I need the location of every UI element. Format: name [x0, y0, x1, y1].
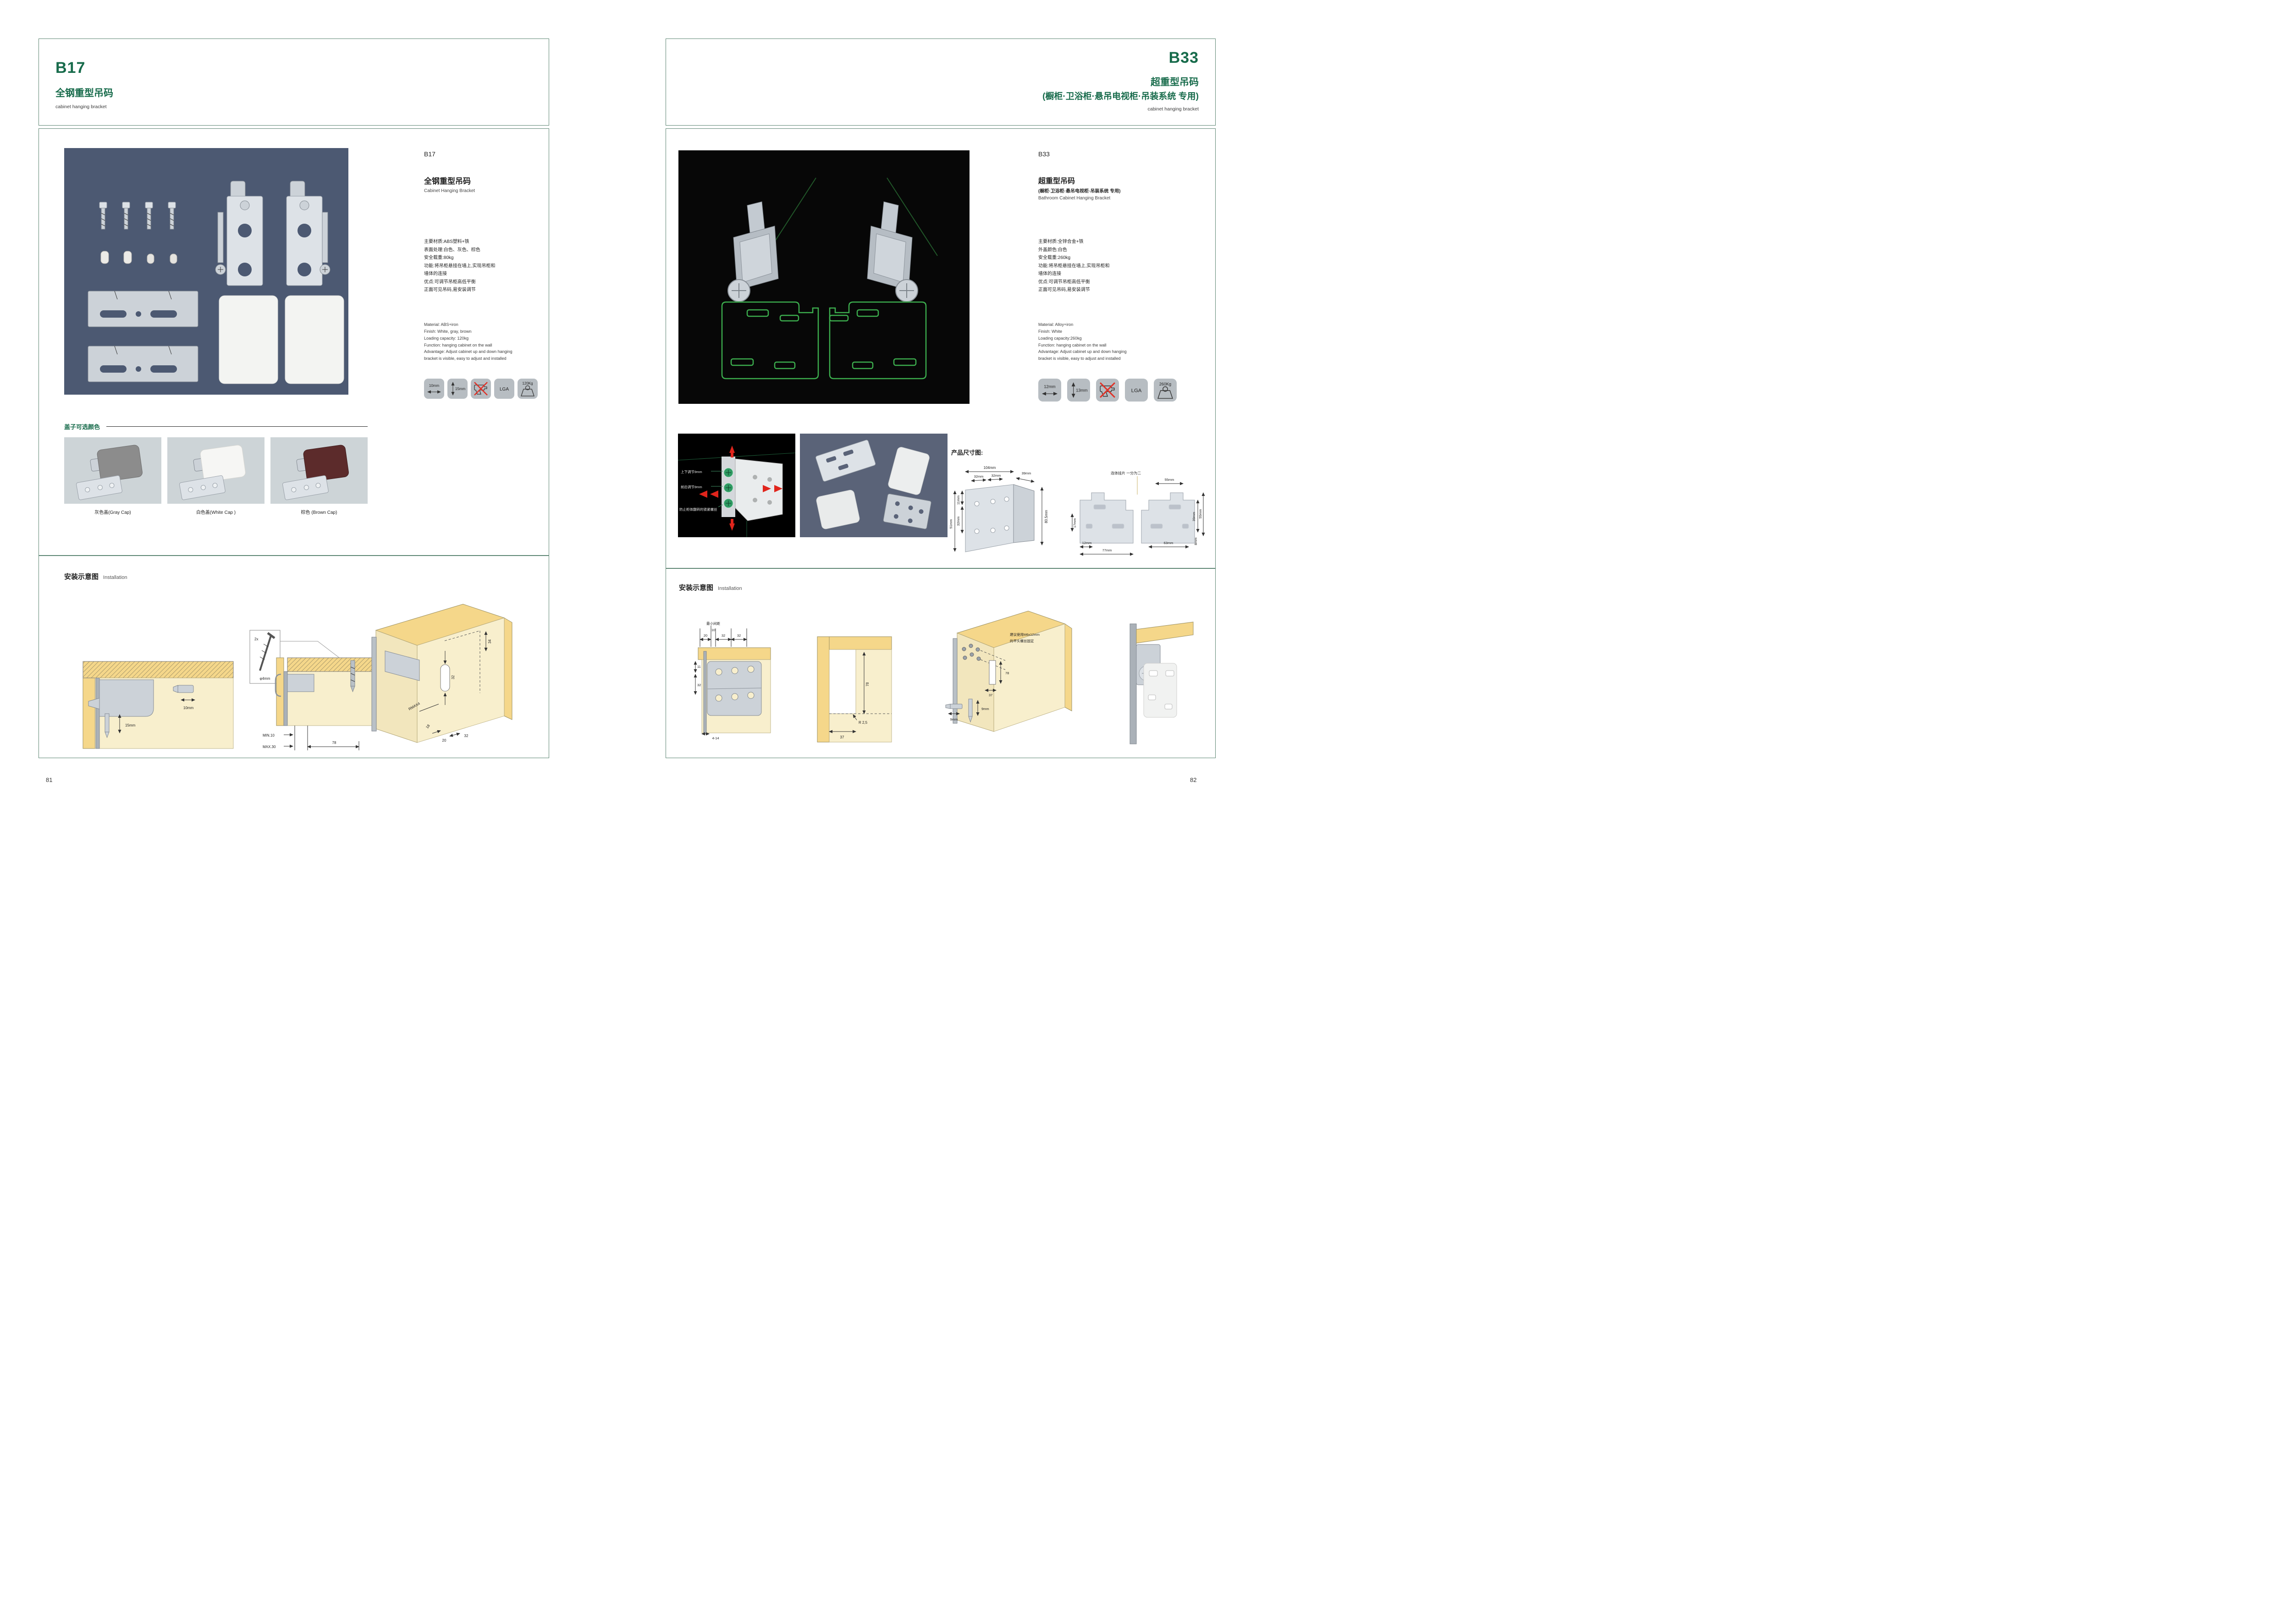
- dim-12mm: 12mm: [1082, 541, 1092, 545]
- install-diagram-wall-section: 10mm 15mm: [79, 658, 237, 752]
- dim-10mm: 10mm: [183, 706, 194, 710]
- dim-10: 10: [711, 628, 715, 632]
- dim-77mm: 77mm: [1102, 548, 1112, 552]
- cap-colors-title: 盖子可选颜色: [64, 422, 100, 431]
- spec-line: 功能:将吊柜悬挂在墙上,实现吊柜和: [424, 262, 496, 270]
- specs-cn: 主要材质:全锌合金+铁 外盖颜色:白色 安全载重:260kg 功能:将吊柜悬挂在…: [1038, 238, 1110, 294]
- dim-32-b: 32: [464, 734, 468, 738]
- height-label: 13mm: [1076, 388, 1087, 392]
- product-subtitle-cn: (橱柜·卫浴柜·悬吊电视柜·吊装系统 专用): [1038, 187, 1120, 194]
- dim-9mm-a: 9mm: [950, 717, 958, 721]
- product-dims-title: 产品尺寸图:: [951, 448, 983, 457]
- spec-line: Advantage: Adjust cabinet up and down ha…: [424, 348, 512, 355]
- dim-51mm: 51mm: [949, 519, 953, 529]
- adjustment-feature-image: 上下调节9mm 前后调节9mm 防止柜体翻转的锁紧螺丝: [678, 434, 795, 537]
- spec-line: bracket is visible, easy to adjust and i…: [424, 355, 512, 362]
- right-header-subtitle-en: cabinet hanging bracket: [1148, 106, 1199, 112]
- specs-cn: 主要材质:ABS塑料+铁 表面处理:白色、灰色、棕色 安全载重:80kg 功能:…: [424, 238, 496, 294]
- installation-title-en: Installation: [718, 586, 742, 591]
- width-label: 12mm: [1044, 384, 1055, 389]
- specs-en: Material: ABS+iron Finish: White, gray, …: [424, 321, 512, 362]
- install-diagram-hole-pattern: 最小间距 20 10 32 32 11 32 4-14: [694, 619, 774, 743]
- dim-32mm-a: 32mm: [974, 474, 984, 479]
- hardware-kit-image: [64, 148, 348, 395]
- height-range-icon: 15mm: [447, 379, 468, 399]
- product-code: B17: [424, 150, 435, 158]
- white-cap-label: 白色盖(White Cap ): [167, 508, 264, 515]
- load-label: 120Kg: [522, 381, 533, 385]
- spec-line: 外盖颜色:白色: [1038, 246, 1110, 254]
- cap-colors-section: 盖子可选颜色: [64, 422, 368, 515]
- install-diagram-hung-bracket: [1120, 619, 1198, 748]
- spec-line: 墙体的连接: [424, 270, 496, 278]
- dim-r25: R 2,5: [859, 721, 868, 725]
- divider-line: [106, 426, 368, 427]
- spec-line: Advantage: Adjust cabinet up and down ha…: [1038, 348, 1127, 355]
- left-header-subtitle: cabinet hanging bracket: [55, 104, 107, 110]
- white-cap-image: [167, 437, 264, 504]
- dim-32mm-b: 32mm: [992, 473, 1001, 478]
- parts-image: [800, 434, 948, 537]
- dim-37: 37: [840, 735, 844, 739]
- dim-min: MIN.10: [263, 733, 275, 738]
- spec-line: 主要材质:全锌合金+铁: [1038, 238, 1110, 246]
- brown-cap-image: [270, 437, 368, 504]
- dim-78: 78: [1005, 671, 1009, 675]
- gray-cap-label: 灰色盖(Gray Cap): [64, 508, 161, 515]
- dim-max: MAX.30: [263, 745, 276, 749]
- spec-line: Loading capacity: 120kg: [424, 335, 512, 342]
- product-title-cn: 全钢重型吊码: [424, 175, 471, 186]
- dim-32a: 32: [722, 633, 725, 638]
- dim-9mm-b: 9mm: [981, 707, 989, 711]
- spec-line: 优点:可调节吊柜高低平衡: [424, 278, 496, 286]
- dim-78: 78: [865, 682, 870, 686]
- lga-cert-icon: LGA: [1125, 379, 1148, 402]
- left-header-title: 全钢重型吊码: [55, 86, 113, 99]
- load-label: 260Kg: [1159, 382, 1171, 386]
- spec-line: Function: hanging cabinet on the wall: [1038, 342, 1127, 349]
- product-code: B33: [1038, 150, 1050, 158]
- install-diagram-screw-recommendation: 建议使用M6x12mm 的平头螺丝固定 78 37 9mm 9mm: [937, 606, 1088, 752]
- spec-line: 正面可见吊码,易安装调节: [424, 286, 496, 294]
- right-main-box: B33 超重型吊码 (橱柜·卫浴柜·悬吊电视柜·吊装系统 专用) Bathroo…: [666, 128, 1216, 568]
- spec-line: Finish: White: [1038, 328, 1127, 335]
- dim-32b: 32: [737, 633, 741, 638]
- left-product-photo: [64, 148, 348, 395]
- left-main-box: B17 全钢重型吊码 Cabinet Hanging Bracket 主要材质:…: [39, 128, 549, 556]
- screw-dia: φ4mm: [260, 677, 270, 681]
- left-icon-row: 10mm 15mm LGA 120Kg: [424, 379, 538, 399]
- left-product-info: B17 全钢重型吊码 Cabinet Hanging Bracket 主要材质:…: [424, 129, 542, 555]
- dim-4-14: 4-14: [712, 736, 719, 740]
- left-installation-box: 安装示意图 Installation 10mm 15mm: [39, 556, 549, 758]
- right-header-subtitle-cn: (橱柜·卫浴柜·悬吊电视柜·吊装系统 专用): [1042, 89, 1199, 102]
- installation-title-en: Installation: [103, 575, 127, 580]
- product-title-en: Cabinet Hanging Bracket: [424, 188, 475, 193]
- brown-cap-label: 棕色 (Brown Cap): [270, 508, 368, 515]
- spec-line: Finish: White, gray, brown: [424, 328, 512, 335]
- product-title-en: Bathroom Cabinet Hanging Bracket: [1038, 196, 1110, 201]
- dim-39mm: 39mm: [1022, 471, 1031, 475]
- dim-55mm-r: 55mm: [1198, 509, 1202, 519]
- dim-32-v: 32: [451, 675, 455, 679]
- install-diagram-isometric: 34 32 RMAX4 18 20 32: [351, 596, 537, 754]
- dim-8mm: 8mm: [1194, 538, 1198, 545]
- right-installation-box: 安装示意图 Installation 最小间距 20 10 32 32 11 3…: [666, 568, 1216, 758]
- gray-cap-image: [64, 437, 161, 504]
- dim-32mm-c: 32mm: [956, 517, 960, 526]
- spec-line: 优点:可调节吊柜高低平衡: [1038, 278, 1110, 286]
- annotation-updown: 上下调节9mm: [681, 470, 702, 474]
- load-capacity-icon: 120Kg: [518, 379, 538, 399]
- spec-line: 墙体的连接: [1038, 270, 1110, 278]
- bracket-dimension-diagram: 104mm 32mm 32mm 39mm 11mm 32mm 51mm 80.5…: [949, 462, 1058, 562]
- right-product-photo: [678, 150, 970, 404]
- dim-20: 20: [442, 738, 446, 743]
- note-screw-1: 建议使用M6x12mm: [1010, 632, 1040, 637]
- green-adjust-screws: [724, 468, 733, 508]
- catalog-spread: B17 全钢重型吊码 cabinet hanging bracket: [0, 0, 1245, 812]
- dim-37: 37: [989, 693, 992, 697]
- spec-line: bracket is visible, easy to adjust and i…: [1038, 355, 1127, 362]
- dim-15mm: 15mm: [125, 723, 136, 727]
- left-header-code: B17: [55, 59, 85, 77]
- right-header-box: B33 超重型吊码 (橱柜·卫浴柜·悬吊电视柜·吊装系统 专用) cabinet…: [666, 39, 1216, 126]
- height-range-icon: 13mm: [1067, 379, 1090, 402]
- no-drill-icon: [471, 379, 491, 399]
- load-capacity-icon: 260Kg: [1154, 379, 1177, 402]
- bracket-photo-image: [678, 150, 970, 404]
- cert-label: LGA: [500, 387, 509, 392]
- dim-63mm: 63mm: [1164, 541, 1174, 545]
- width-range-icon: 10mm: [424, 379, 444, 399]
- spec-line: 主要材质:ABS塑料+铁: [424, 238, 496, 246]
- dim-39mm-r: 39mm: [1192, 512, 1196, 522]
- spec-line: Material: ABS+iron: [424, 321, 512, 328]
- height-label: 15mm: [455, 387, 466, 391]
- dim-32c: 32: [697, 683, 701, 687]
- dim-11mm: 11mm: [956, 495, 960, 505]
- spec-line: Loading capacity:260kg: [1038, 335, 1127, 342]
- installation-title-cn: 安装示意图: [679, 583, 713, 592]
- dim-104mm: 104mm: [984, 466, 996, 470]
- note-min-gap: 最小间距: [706, 622, 720, 626]
- spec-line: 表面处理:白色、灰色、棕色: [424, 246, 496, 254]
- dim-34: 34: [488, 639, 492, 644]
- screw-qty: 2x: [254, 637, 258, 641]
- dim-80-5mm: 80.5mm: [1044, 510, 1048, 523]
- plate-note: 连体挂片 一分为二: [1111, 471, 1141, 475]
- dim-55mm-top: 55mm: [1165, 478, 1174, 482]
- annotation-lock-screw: 防止柜体翻转的锁紧螺丝: [679, 507, 717, 512]
- dim-78: 78: [332, 741, 336, 745]
- dim-11: 11: [697, 665, 701, 669]
- spec-line: 功能:将吊柜悬挂在墙上,实现吊柜和: [1038, 262, 1110, 270]
- width-label: 10mm: [429, 384, 440, 388]
- spec-line: 正面可见吊码,易安装调节: [1038, 286, 1110, 294]
- installation-title-cn: 安装示意图: [64, 572, 99, 581]
- dim-20: 20: [704, 633, 707, 638]
- spec-line: 安全载重:80kg: [424, 254, 496, 262]
- spec-line: 安全载重:260kg: [1038, 254, 1110, 262]
- plate-dimension-diagram: 连体挂片 一分为二 55mm 17mm 12mm 77mm 63mm 39mm …: [1069, 468, 1207, 561]
- page-number-left: 81: [46, 776, 52, 783]
- product-title-cn: 超重型吊码: [1038, 175, 1075, 186]
- left-header-box: B17 全钢重型吊码 cabinet hanging bracket: [39, 39, 549, 126]
- width-range-icon: 12mm: [1038, 379, 1061, 402]
- right-header-code: B33: [1169, 49, 1199, 67]
- page-number-right: 82: [1190, 776, 1196, 783]
- spec-line: Material: Alloy+iron: [1038, 321, 1127, 328]
- dim-17mm: 17mm: [1073, 518, 1077, 528]
- specs-en: Material: Alloy+iron Finish: White Loadi…: [1038, 321, 1127, 362]
- right-header-title: 超重型吊码: [1151, 75, 1199, 88]
- lga-cert-icon: LGA: [494, 379, 514, 399]
- right-icon-row: 12mm 13mm LGA 260Kg: [1038, 379, 1177, 402]
- note-screw-2: 的平头螺丝固定: [1010, 639, 1034, 643]
- cert-label: LGA: [1131, 388, 1142, 394]
- annotation-frontback: 前后调节9mm: [681, 484, 702, 489]
- no-drill-icon: [1096, 379, 1119, 402]
- spec-line: Function: hanging cabinet on the wall: [424, 342, 512, 349]
- install-diagram-routing: 78 R 2,5 37: [813, 633, 895, 745]
